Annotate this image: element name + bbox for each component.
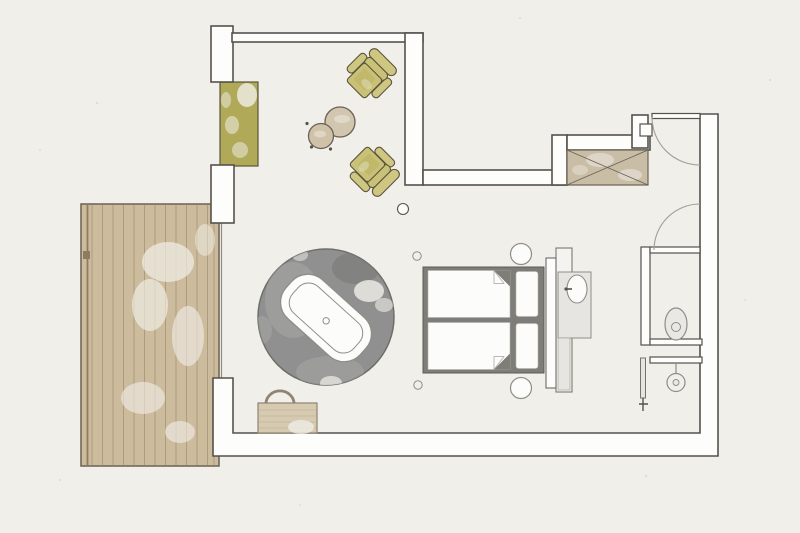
wall-pillar-mid-left bbox=[211, 165, 234, 223]
wall-niche-left bbox=[641, 247, 650, 345]
wall-pillar-top-left bbox=[211, 26, 233, 82]
floor-lamp bbox=[398, 204, 409, 215]
shower-glass-screen bbox=[641, 358, 646, 398]
terrace-deck bbox=[81, 204, 219, 466]
vanity-lower-strip bbox=[558, 338, 570, 390]
floor-plan-drawing bbox=[0, 0, 800, 533]
wall-step-vertical bbox=[405, 33, 423, 185]
double-bed bbox=[423, 267, 544, 373]
wall-step-up bbox=[552, 135, 567, 185]
floor-plan-canvas bbox=[0, 0, 800, 533]
olive-window-panel bbox=[220, 82, 258, 166]
entry-door-threshold bbox=[652, 114, 700, 119]
wardrobe-bench bbox=[567, 150, 648, 185]
wall-shower-top bbox=[650, 357, 702, 363]
wall-mid-horizontal bbox=[423, 170, 567, 185]
wall-top bbox=[232, 33, 423, 42]
pillow-bottom bbox=[516, 324, 538, 369]
toilet bbox=[665, 308, 687, 340]
headboard bbox=[546, 258, 556, 388]
entry-door-stop bbox=[640, 124, 652, 136]
deck-edge-detail bbox=[83, 251, 90, 259]
bathroom-door-leaf bbox=[650, 247, 700, 253]
pillow-top bbox=[516, 272, 538, 317]
